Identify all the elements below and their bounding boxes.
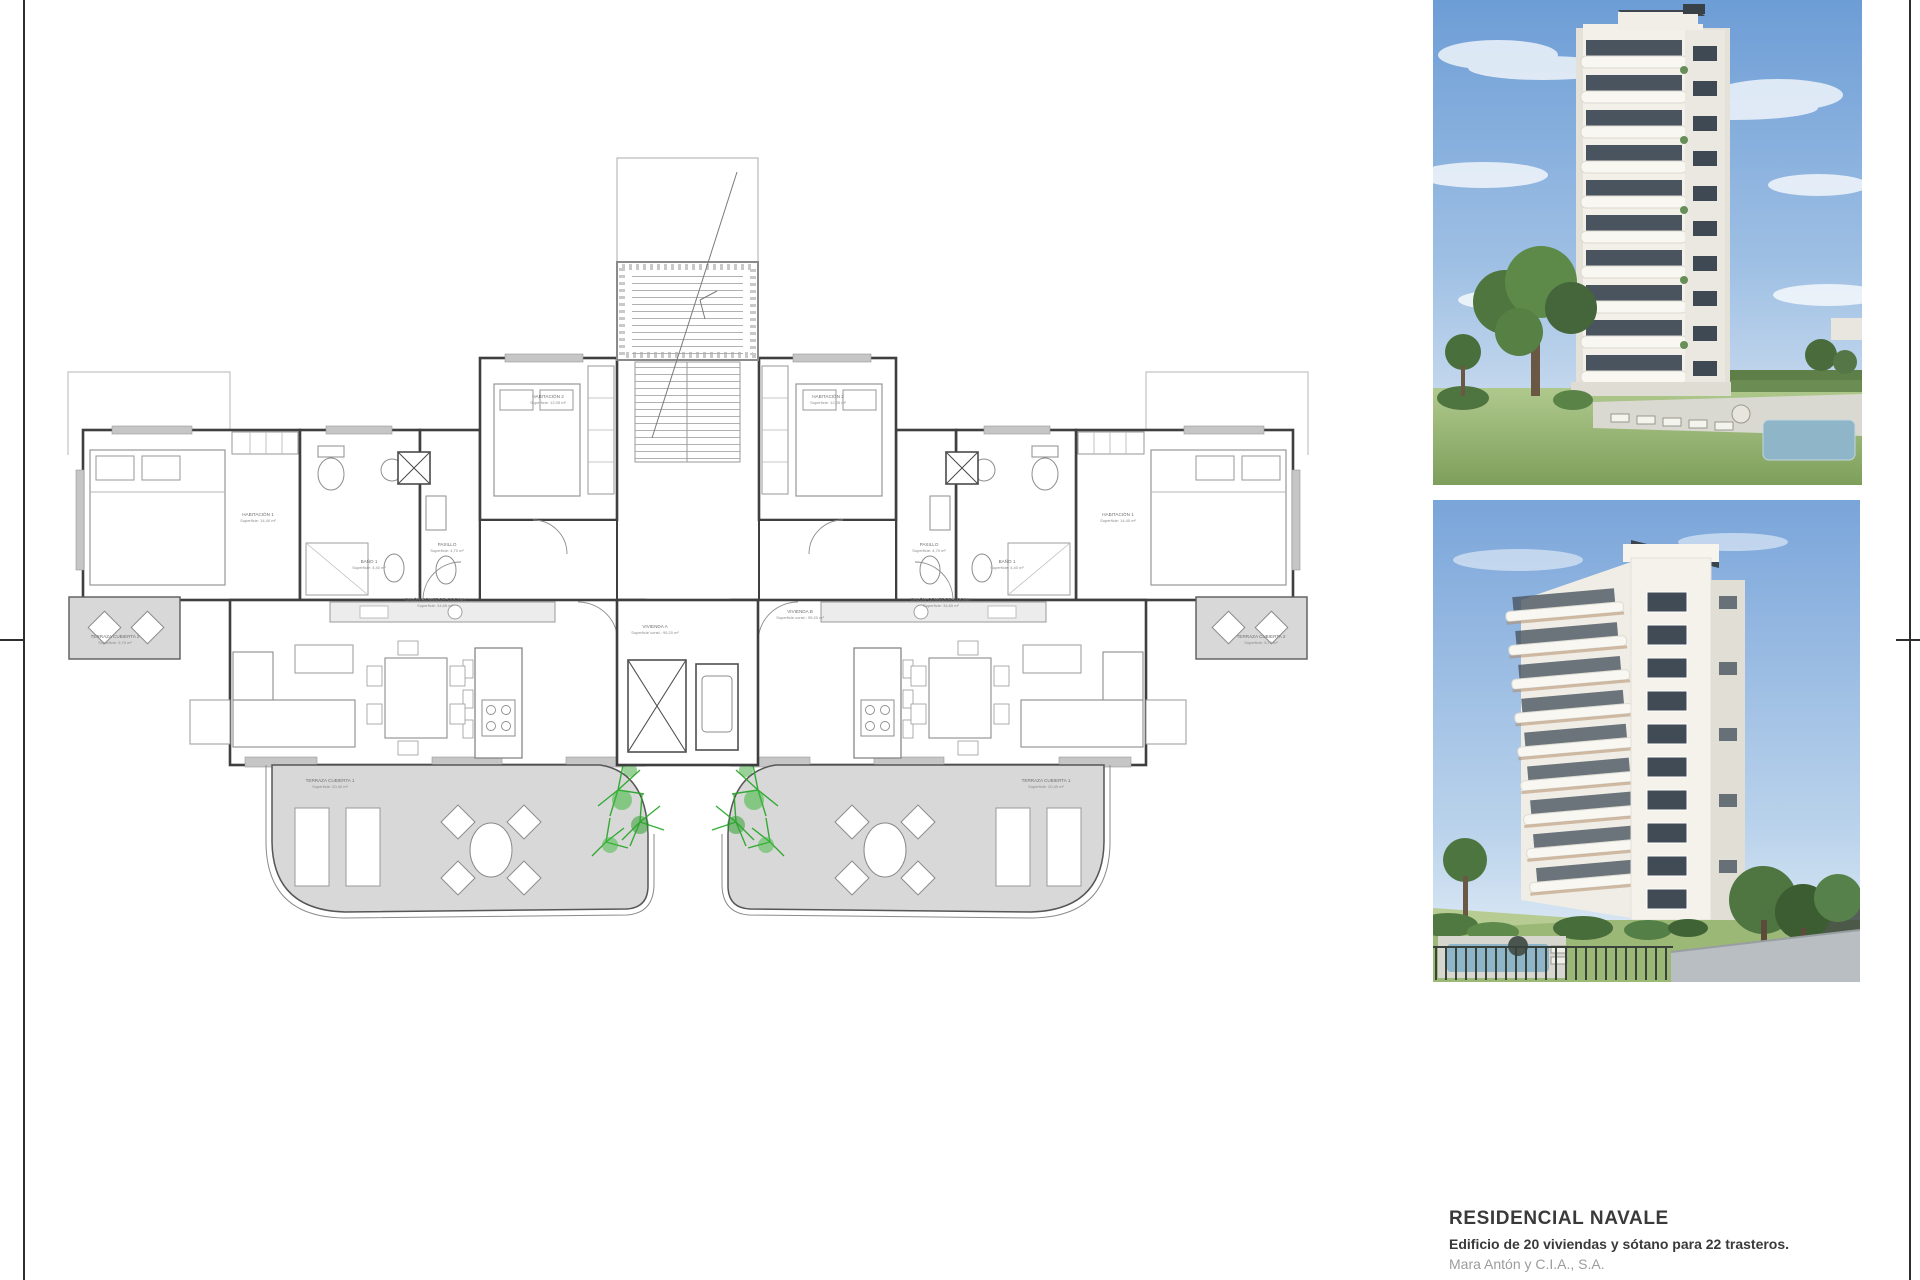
svg-text:Superficie: 20,40 m²: Superficie: 20,40 m²	[312, 784, 348, 789]
pool	[1763, 420, 1855, 460]
tower-building	[1571, 4, 1731, 396]
svg-text:Superficie: 4,70 m²: Superficie: 4,70 m²	[912, 548, 946, 553]
svg-text:PASILLO: PASILLO	[438, 542, 457, 547]
svg-text:Superficie: 12,05 m²: Superficie: 12,05 m²	[810, 400, 846, 405]
svg-text:SALÓN-COMEDOR-COCINA: SALÓN-COMEDOR-COCINA	[911, 596, 972, 602]
exterior-render-bottom	[1433, 500, 1860, 982]
exterior-render-top	[1433, 0, 1862, 485]
svg-text:Superficie: 5,70 m²: Superficie: 5,70 m²	[1244, 640, 1278, 645]
svg-text:Superficie: 5,70 m²: Superficie: 5,70 m²	[98, 640, 132, 645]
svg-text:Superficie: 4,40 m²: Superficie: 4,40 m²	[990, 565, 1024, 570]
svg-text:Superficie const.: 95,20 m²: Superficie const.: 95,20 m²	[631, 630, 679, 635]
svg-text:BAÑO 1: BAÑO 1	[361, 558, 378, 564]
elevator-shaft	[628, 660, 686, 752]
svg-text:VIVIENDA A: VIVIENDA A	[642, 624, 668, 629]
svg-text:Superficie: 34,65 m²: Superficie: 34,65 m²	[923, 603, 959, 608]
sun-lounger	[1551, 957, 1567, 964]
svg-text:Superficie const.: 95,20 m²: Superficie const.: 95,20 m²	[776, 615, 824, 620]
svg-text:HABITACIÓN 2: HABITACIÓN 2	[532, 393, 564, 399]
parasol	[1732, 405, 1750, 423]
elevator-car	[696, 664, 738, 750]
svg-text:HABITACIÓN 1: HABITACIÓN 1	[242, 511, 274, 517]
drawing-sheet: HABITACIÓN 1 Superficie: 14,40 m² HABITA…	[0, 0, 1920, 1280]
svg-text:Superficie: 34,65 m²: Superficie: 34,65 m²	[417, 603, 453, 608]
svg-text:HABITACIÓN 1: HABITACIÓN 1	[1102, 511, 1134, 517]
registration-tick-right	[1896, 639, 1920, 641]
svg-text:TERRAZA CUBIERTA 2: TERRAZA CUBIERTA 2	[91, 634, 140, 639]
project-name: RESIDENCIAL NAVALE	[1449, 1208, 1889, 1230]
svg-text:TERRAZA CUBIERTA 2: TERRAZA CUBIERTA 2	[1237, 634, 1286, 639]
developer-name: Mara Antón y C.I.A., S.A.	[1449, 1256, 1889, 1272]
floor-plan-drawing: HABITACIÓN 1 Superficie: 14,40 m² HABITA…	[0, 0, 1360, 940]
apartment-unit-b	[712, 354, 1308, 918]
svg-text:SALÓN-COMEDOR-COCINA: SALÓN-COMEDOR-COCINA	[405, 596, 466, 602]
svg-text:TERRAZA CUBIERTA 1: TERRAZA CUBIERTA 1	[306, 778, 355, 783]
pool	[1447, 944, 1549, 972]
svg-text:Superficie: 4,70 m²: Superficie: 4,70 m²	[430, 548, 464, 553]
svg-text:BAÑO 1: BAÑO 1	[999, 558, 1016, 564]
svg-text:Superficie: 20,40 m²: Superficie: 20,40 m²	[1028, 784, 1064, 789]
svg-text:Superficie: 14,40 m²: Superficie: 14,40 m²	[1100, 518, 1136, 523]
svg-text:HABITACIÓN 2: HABITACIÓN 2	[812, 393, 844, 399]
svg-text:Superficie: 12,05 m²: Superficie: 12,05 m²	[530, 400, 566, 405]
stair-core	[617, 158, 758, 765]
pool-area	[1438, 936, 1567, 978]
svg-text:TERRAZA CUBIERTA 1: TERRAZA CUBIERTA 1	[1022, 778, 1071, 783]
tower-building	[1504, 540, 1745, 920]
title-block: RESIDENCIAL NAVALE Edificio de 20 vivien…	[1449, 1208, 1889, 1272]
svg-text:Superficie: 14,40 m²: Superficie: 14,40 m²	[240, 518, 276, 523]
apartment-unit-a	[68, 354, 664, 918]
svg-text:VIVIENDA B: VIVIENDA B	[787, 609, 813, 614]
svg-text:PASILLO: PASILLO	[920, 542, 939, 547]
neighbor-building	[1831, 318, 1862, 340]
project-description: Edificio de 20 viviendas y sótano para 2…	[1449, 1236, 1889, 1252]
svg-text:Superficie: 4,40 m²: Superficie: 4,40 m²	[352, 565, 386, 570]
